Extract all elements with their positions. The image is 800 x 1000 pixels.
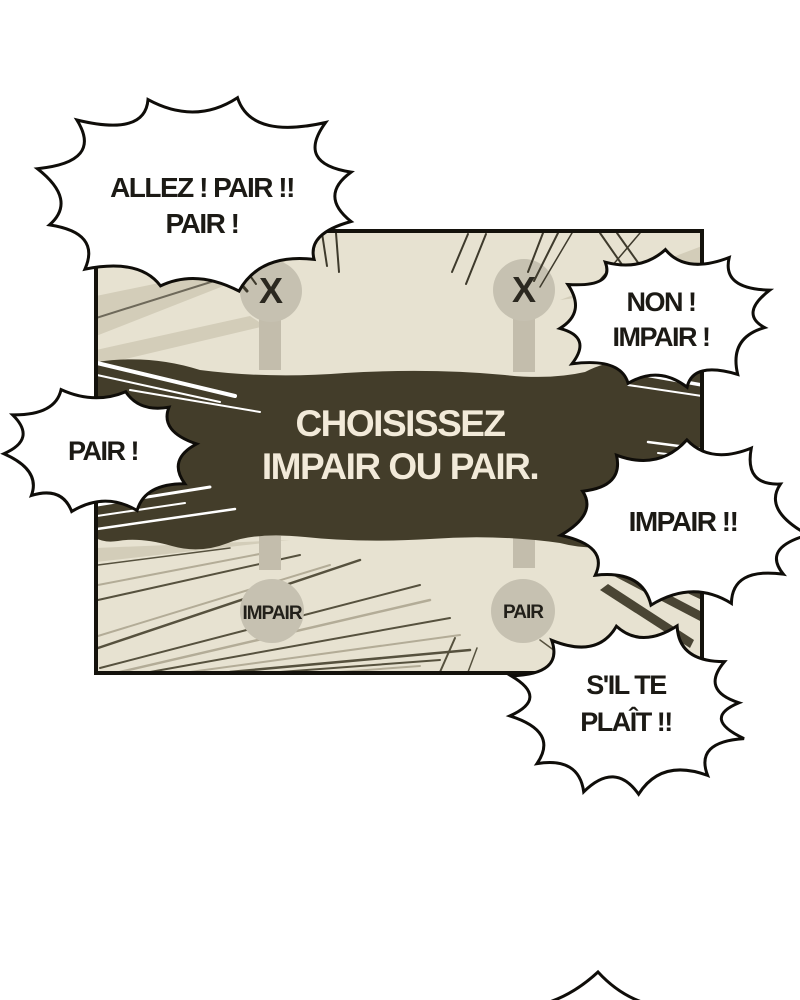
choice-label-impair: IMPAIR — [242, 603, 302, 624]
comic-page: X X IMPAIR PAIR CHOISISSEZ IMPAIR OU PAI… — [0, 0, 800, 1000]
bubble-text: S'IL TE — [586, 670, 666, 700]
choice-label-top-right: X — [512, 269, 536, 310]
bubble-text: IMPAIR ! — [613, 322, 710, 352]
instruction-line-2: IMPAIR OU PAIR. — [262, 446, 538, 487]
bubble-text: PAIR ! — [166, 208, 239, 239]
bubble-text: NON ! — [627, 287, 696, 317]
bubble-text: PLAÎT !! — [580, 706, 671, 737]
instruction-line-1: CHOISISSEZ — [295, 403, 505, 444]
bubble-text: ALLEZ ! PAIR !! — [110, 172, 294, 203]
bubble-text: IMPAIR !! — [629, 506, 738, 537]
choice-label-top-left: X — [259, 270, 283, 311]
bubble-text: PAIR ! — [68, 436, 138, 466]
speech-bubble-bottom-tip — [543, 972, 648, 1000]
choice-label-pair: PAIR — [503, 602, 544, 623]
